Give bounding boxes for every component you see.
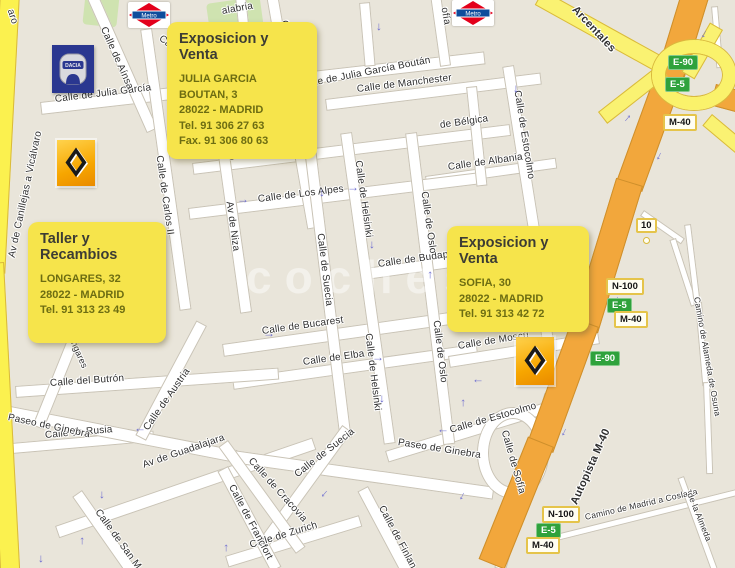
- direction-arrow-icon: [376, 21, 386, 33]
- direction-arrow-icon: [513, 83, 523, 95]
- info-box-line: Tel. 91 313 23 49: [40, 303, 154, 319]
- info-box-line: Fax. 91 306 80 63: [179, 134, 305, 150]
- direction-arrow-icon: [347, 182, 359, 192]
- info-box-title: Taller y Recambios: [40, 231, 154, 263]
- exit-dot: [643, 237, 650, 244]
- info-box-taller-recambios: Taller y Recambios LONGARES, 32 28022 - …: [28, 222, 166, 343]
- route-badge-n100: N-100: [542, 506, 580, 523]
- direction-arrow-icon: [372, 352, 384, 362]
- direction-arrow-icon: [75, 535, 85, 547]
- direction-arrow-icon: [319, 187, 329, 199]
- direction-arrow-icon: [369, 239, 379, 251]
- route-badge-e90: E-90: [668, 55, 698, 70]
- info-box-title: Exposicion y Venta: [459, 235, 577, 267]
- direction-arrow-icon: [437, 428, 449, 438]
- direction-arrow-icon: [237, 194, 249, 204]
- direction-arrow-icon: [472, 378, 484, 388]
- svg-text:DACIA: DACIA: [65, 63, 81, 69]
- renault-logo: [516, 337, 554, 385]
- direction-arrow-icon: [456, 397, 466, 409]
- map-canvas[interactable]: coches: [0, 0, 735, 568]
- direction-arrow-icon: [423, 269, 433, 281]
- direction-arrow-icon: [134, 427, 146, 437]
- direction-arrow-icon: [559, 425, 573, 440]
- info-box-line: Tel. 91 306 27 63: [179, 119, 305, 135]
- road-segment: [359, 2, 376, 67]
- street-label: Autopista M-40: [569, 427, 613, 506]
- direction-arrow-icon: [457, 489, 471, 504]
- direction-arrow-icon: [99, 489, 109, 501]
- info-box-line: SOFIA, 30: [459, 276, 577, 292]
- direction-arrow-icon: [219, 542, 229, 554]
- highway-ramp: [702, 114, 735, 167]
- direction-arrow-icon: [318, 487, 333, 503]
- direction-arrow-icon: [654, 149, 668, 164]
- roundabout: [652, 40, 735, 110]
- route-badge-exit10: 10: [636, 218, 657, 233]
- svg-text:Metro: Metro: [465, 12, 481, 18]
- info-box-line: 28022 - MADRID: [40, 288, 154, 304]
- info-box-line: 28022 - MADRID: [179, 103, 305, 119]
- info-box-exposicion-sofia: Exposicion y Venta SOFIA, 30 28022 - MAD…: [447, 226, 589, 332]
- direction-arrow-icon: [379, 393, 389, 405]
- info-box-exposicion-julia-garcia: Exposicion y Venta JULIA GARCIA BOUTAN, …: [167, 22, 317, 159]
- route-badge-m40: M-40: [614, 311, 648, 328]
- info-box-title: Exposicion y Venta: [179, 31, 305, 63]
- svg-text:Metro: Metro: [141, 14, 157, 20]
- metro-icon: Metro: [452, 0, 494, 26]
- dacia-logo: DACIA: [52, 45, 94, 93]
- road-segment: [0, 404, 238, 463]
- route-badge-n100: N-100: [606, 278, 644, 295]
- route-badge-m40: M-40: [663, 114, 697, 131]
- route-badge-e5: E-5: [536, 523, 561, 538]
- info-box-line: 28022 - MADRID: [459, 292, 577, 308]
- direction-arrow-icon: [263, 328, 275, 338]
- info-box-line: LONGARES, 32: [40, 272, 154, 288]
- route-badge-e90: E-90: [590, 351, 620, 366]
- route-badge-m40: M-40: [526, 537, 560, 554]
- metro-icon: Metro: [128, 2, 170, 28]
- route-badge-e5: E-5: [665, 77, 690, 92]
- info-box-line: JULIA GARCIA BOUTAN, 3: [179, 72, 305, 103]
- direction-arrow-icon: [38, 553, 48, 565]
- renault-logo: [57, 140, 95, 186]
- direction-arrow-icon: [618, 109, 633, 125]
- info-box-line: Tel. 91 313 42 72: [459, 307, 577, 323]
